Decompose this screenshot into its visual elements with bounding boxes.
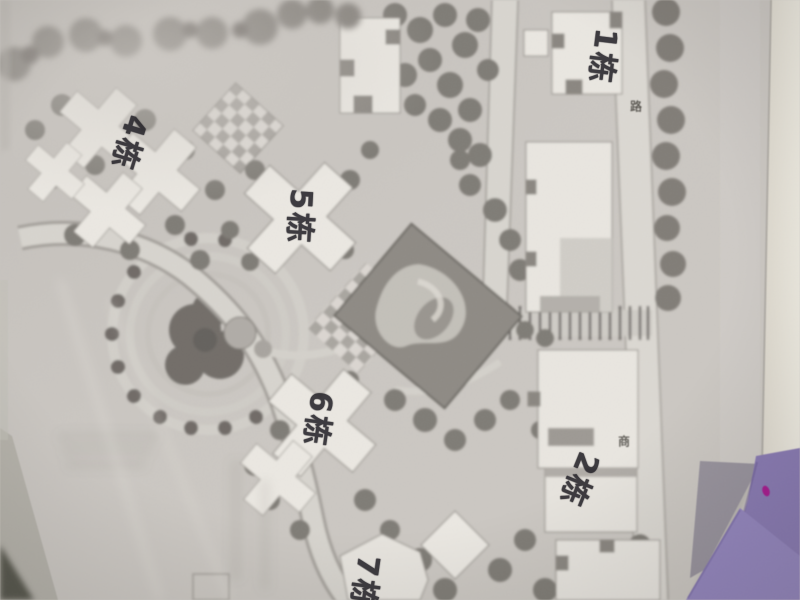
printed-road-marker-bottom: 商: [618, 433, 630, 450]
site-plan-drawing: [0, 0, 800, 600]
printed-road-marker-top: 路: [630, 98, 642, 115]
photo-grain: [0, 0, 800, 600]
building-label-1: 1栋: [581, 26, 632, 88]
site-plan-photo: 1栋 2栋 4栋 5栋 6栋 7栋 路 商: [0, 0, 800, 600]
building-label-7: 7栋: [342, 553, 393, 600]
building-label-5: 5栋: [280, 187, 327, 246]
building-label-6: 6栋: [295, 389, 346, 451]
